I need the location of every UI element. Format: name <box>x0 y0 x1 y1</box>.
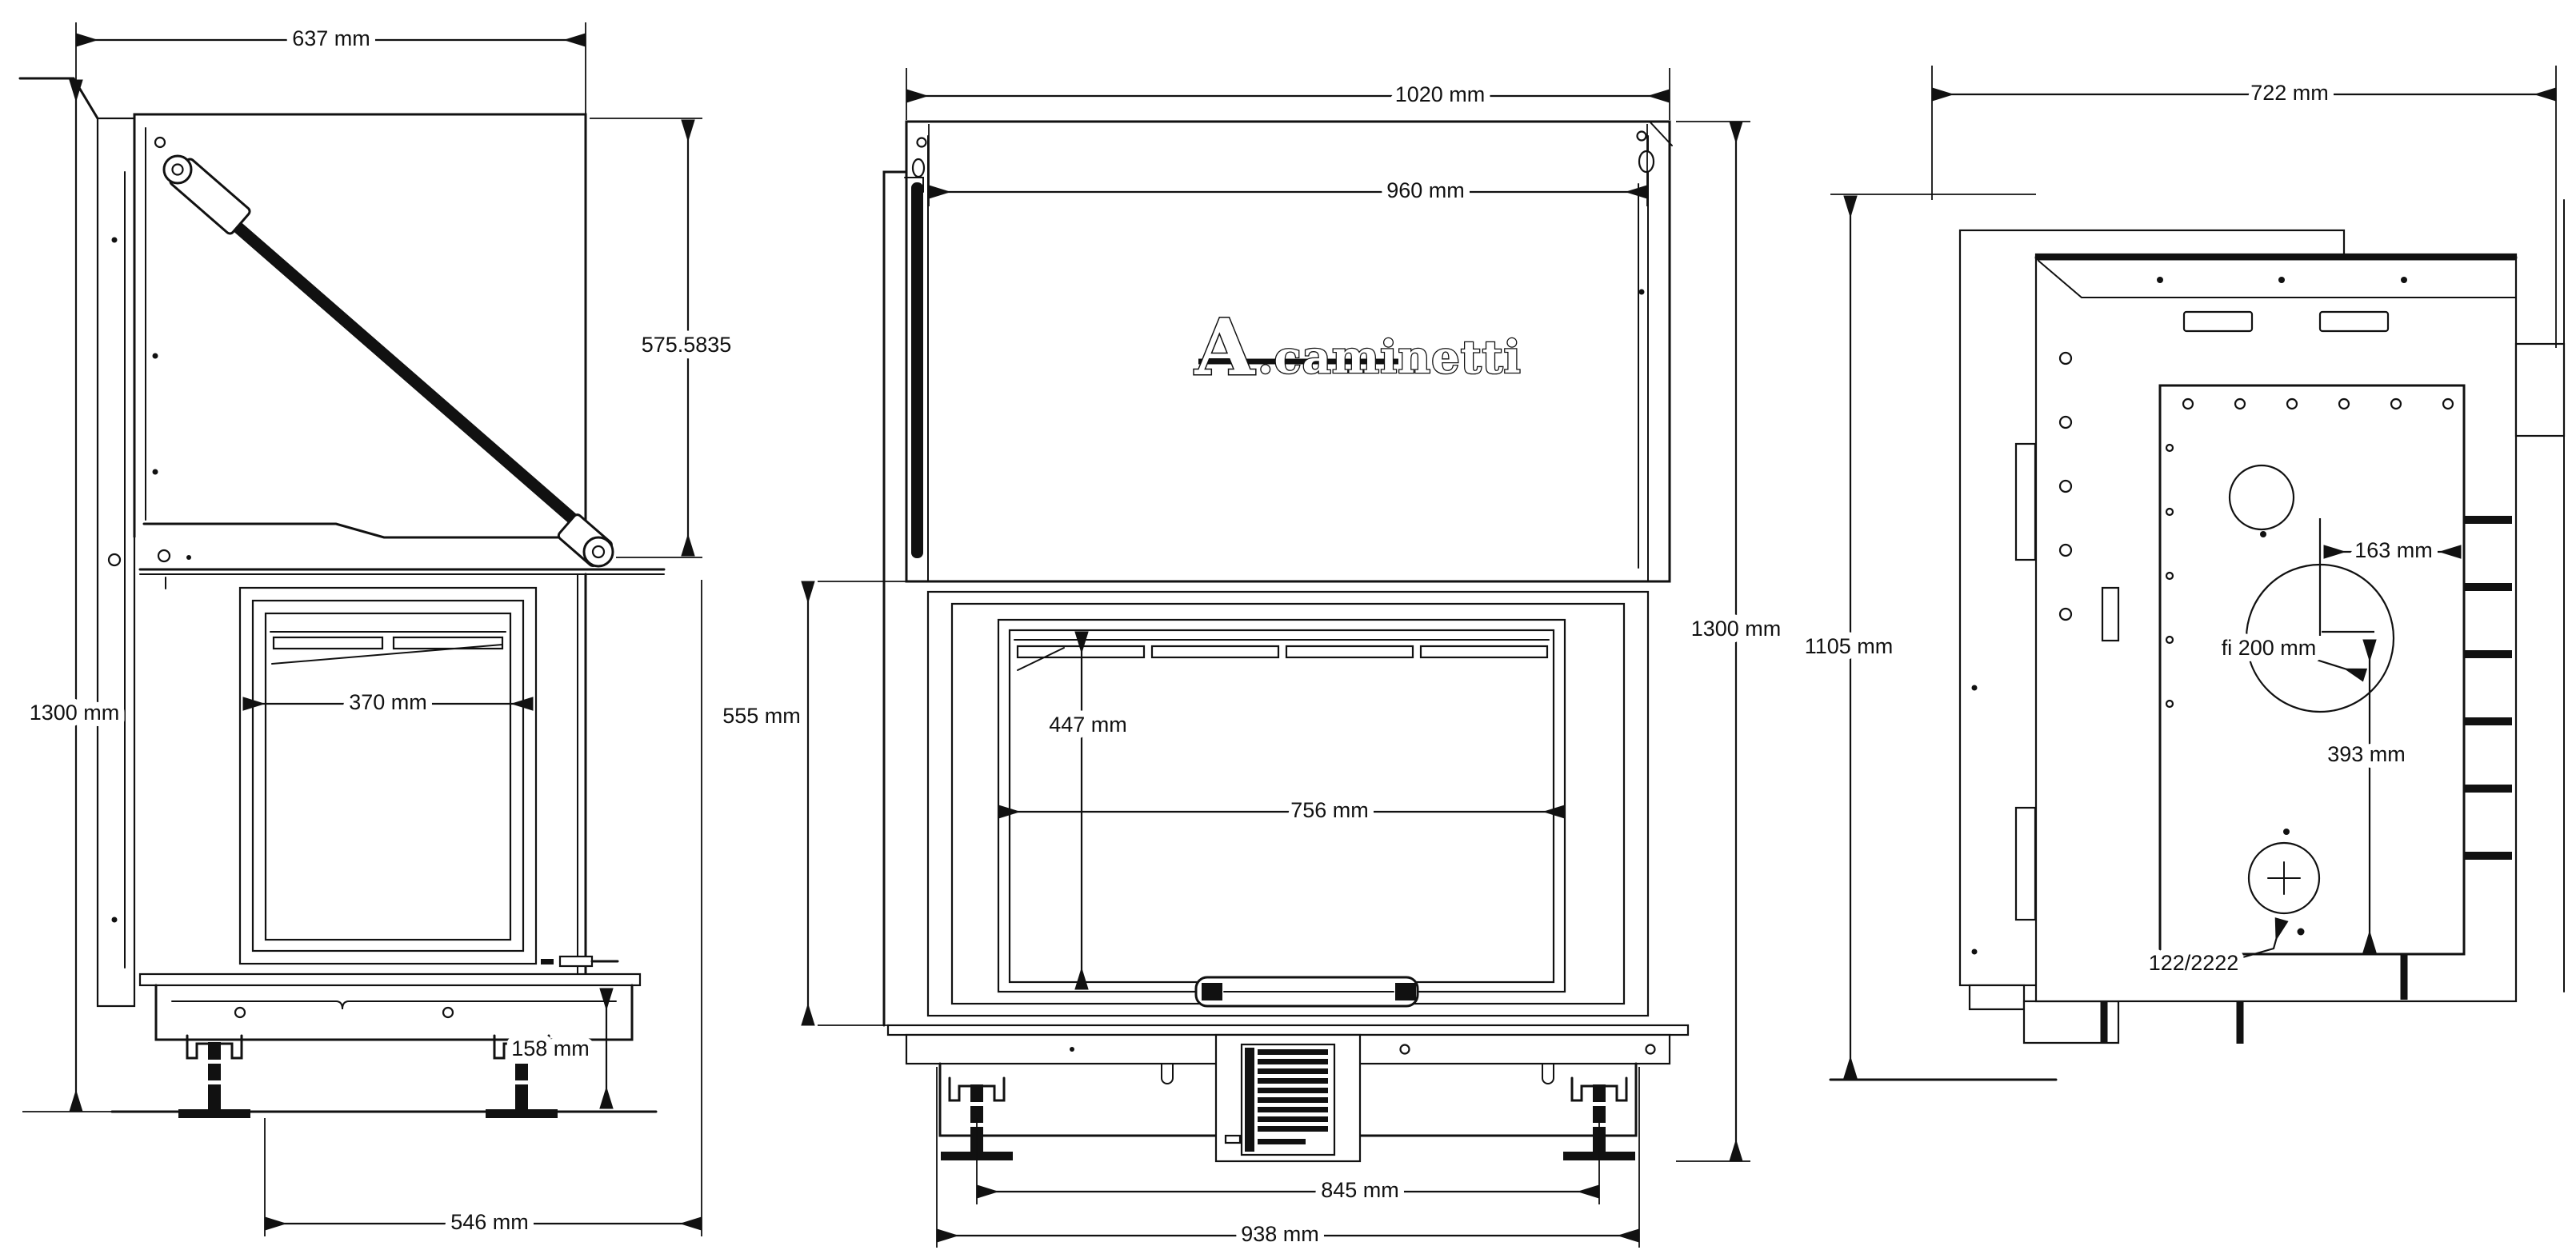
front-door-gasket <box>911 182 923 558</box>
dim-rear-top-depth: 722 mm <box>2250 81 2329 105</box>
dim-front-body-width: 960 mm <box>1386 178 1465 202</box>
dim-side-base-height: 158 mm <box>511 1036 590 1060</box>
front-base <box>888 1025 1688 1161</box>
dim-side-base-depth: 546 mm <box>450 1210 529 1234</box>
rear-view: 722 mm 1105 mm 163 mm fi 200 mm 393 mm 1… <box>1805 66 2564 1080</box>
dim-front-overall-height: 1300 mm <box>1691 617 1782 641</box>
dim-front-glass-width: 756 mm <box>1290 798 1369 822</box>
dim-rear-flue-center-height: 393 mm <box>2327 742 2406 766</box>
dim-side-top-width: 637 mm <box>292 26 370 50</box>
front-view: A .caminetti <box>722 68 1781 1248</box>
rear-upper-hole <box>2230 465 2294 529</box>
dim-rear-body-height: 1105 mm <box>1805 634 1894 658</box>
side-view: 637 mm 1300 mm 575.5835 370 mm 158 mm 54… <box>20 22 731 1236</box>
side-firebox <box>240 574 618 980</box>
rear-flue-collar <box>2516 200 2564 992</box>
dim-front-feet-spacing: 845 mm <box>1321 1178 1399 1202</box>
dim-side-door-lift-height: 575.5835 <box>642 333 732 357</box>
front-firebox <box>928 592 1648 1016</box>
front-door-handle <box>1196 977 1418 1006</box>
side-foot-left <box>178 1036 250 1118</box>
dim-front-glass-height: 447 mm <box>1049 713 1127 737</box>
dim-front-overall-width: 1020 mm <box>1395 82 1486 106</box>
dim-front-base-width: 938 mm <box>1241 1222 1319 1246</box>
dim-side-glass-width: 370 mm <box>349 690 427 714</box>
dim-front-firebox-height: 555 mm <box>722 704 801 728</box>
drawing-svg: 637 mm 1300 mm 575.5835 370 mm 158 mm 54… <box>0 0 2576 1258</box>
dim-rear-intake-code: 122/2222 <box>2149 951 2239 975</box>
brand-logo-mark: A <box>1194 302 1256 393</box>
front-control-box <box>1216 1035 1360 1161</box>
technical-drawing-fireplace: 637 mm 1300 mm 575.5835 370 mm 158 mm 54… <box>0 0 2576 1258</box>
dim-rear-flue-diameter: fi 200 mm <box>2222 636 2317 660</box>
dim-side-overall-height: 1300 mm <box>30 701 120 725</box>
side-door-latch <box>541 956 618 966</box>
rear-cover-panel <box>2160 385 2512 954</box>
brand-logo-text: .caminetti <box>1258 331 1522 384</box>
dim-rear-flue-offset: 163 mm <box>2354 538 2433 562</box>
side-wall-bracket <box>20 78 134 1006</box>
